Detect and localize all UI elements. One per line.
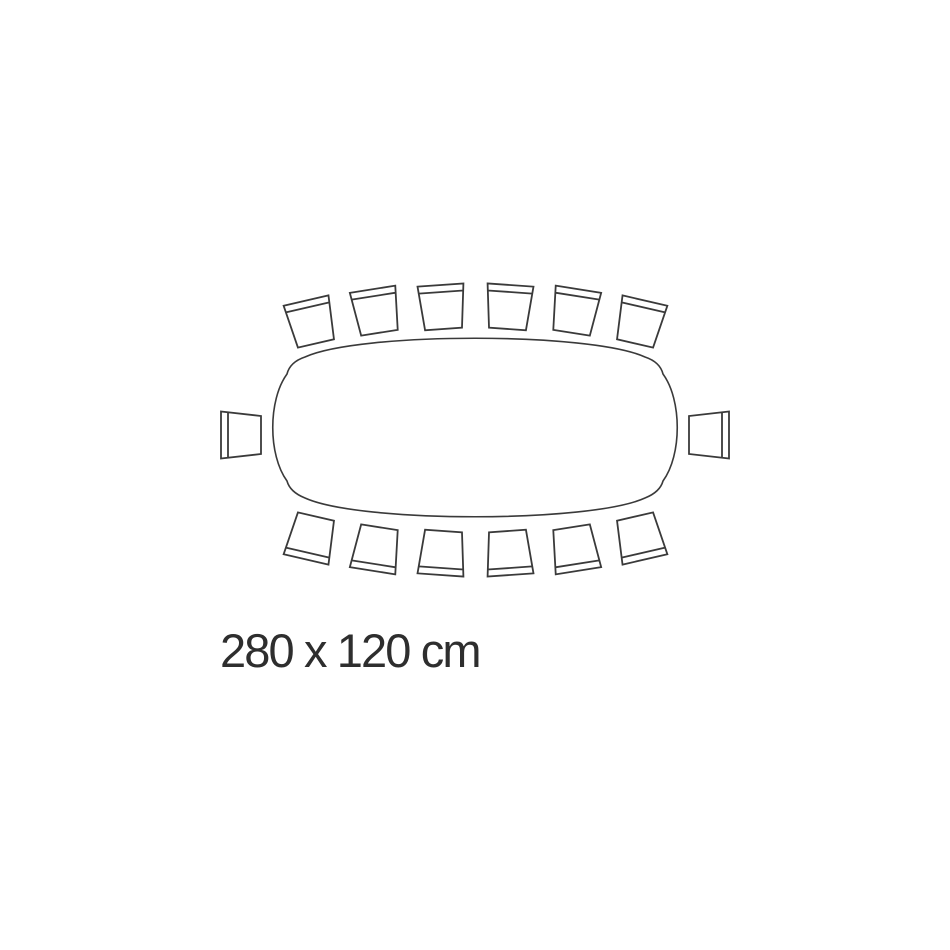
chair-top-1: [284, 295, 339, 348]
chair-top-4: [485, 283, 534, 330]
chair-top-2: [350, 286, 402, 337]
chair-top-3: [418, 283, 467, 330]
chair-bottom-5: [549, 524, 601, 575]
chair-bottom-6: [613, 511, 668, 564]
chair-bottom-3: [418, 529, 467, 576]
dimension-label: 280 x 120 cm: [220, 624, 482, 677]
table-seating-diagram: 280 x 120 cm: [0, 0, 950, 950]
chair-bottom-1: [284, 511, 339, 564]
diagram-canvas: 280 x 120 cm: [0, 0, 950, 950]
chair-right: [689, 412, 729, 459]
chair-top-6: [613, 295, 668, 348]
chair-bottom-2: [350, 524, 402, 575]
table-outline: [273, 338, 678, 517]
chair-left: [221, 412, 261, 459]
chair-top-5: [549, 286, 601, 337]
chair-bottom-4: [485, 529, 534, 576]
